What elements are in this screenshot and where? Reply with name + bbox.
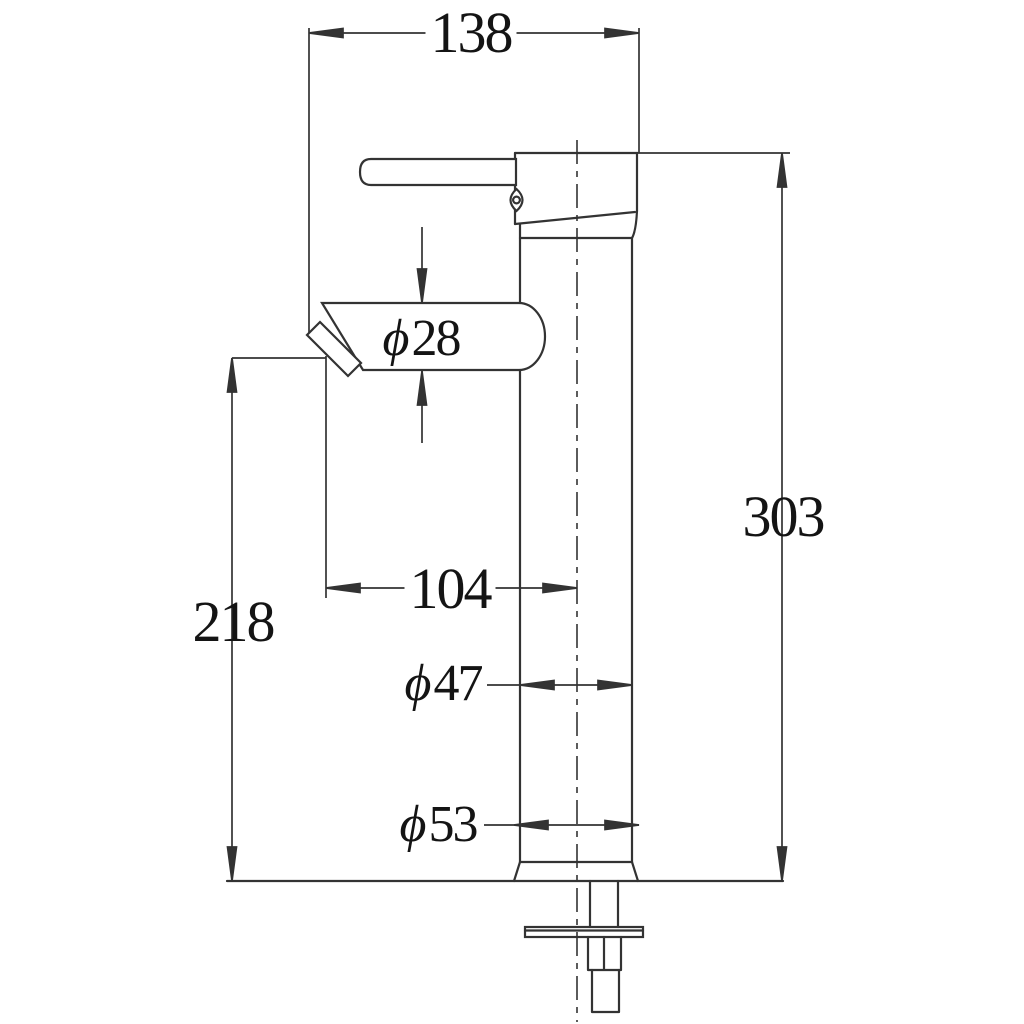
arrow-up-icon [418,371,427,405]
faucet-handle-lever [360,159,516,185]
faucet-outline [227,153,783,1012]
faucet-technical-drawing: 138 303 218 104 ϕ28 ϕ47 ϕ53 [0,0,1024,1024]
arrow-left-icon [309,29,343,38]
arrow-left-icon [520,681,554,690]
arrow-right-icon [598,681,632,690]
dim-label-spout-reach: 104 [405,560,496,618]
diameter-value: 53 [428,796,476,853]
arrow-down-icon [418,269,427,303]
arrow-right-icon [605,821,639,830]
diameter-value: 47 [433,655,481,712]
threaded-stud [592,970,619,1012]
dim-body-diameter [487,681,632,690]
arrow-down-icon [228,847,237,881]
drawing-canvas [0,0,1024,1024]
dim-label-base-diameter: ϕ53 [400,799,477,851]
diameter-symbol: ϕ [400,796,427,853]
dimension-lines [228,28,791,881]
dim-label-overall-width: 138 [426,4,517,62]
arrow-left-icon [326,584,360,593]
faucet-head [515,153,637,238]
faucet-base [514,862,638,881]
dim-label-overall-height: 303 [743,488,824,546]
dim-label-outlet-height: 218 [193,593,274,651]
dim-base-diameter [484,821,639,830]
arrow-right-icon [543,584,577,593]
diameter-symbol: ϕ [383,310,410,367]
arrow-down-icon [778,847,787,881]
arrow-up-icon [778,153,787,187]
mounting-nut [588,937,621,970]
dim-label-body-diameter: ϕ47 [405,658,482,710]
mounting-washer [525,927,643,937]
arrow-up-icon [228,358,237,392]
arrow-right-icon [605,29,639,38]
diameter-value: 28 [411,310,459,367]
dim-label-spout-diameter: ϕ28 [383,313,460,365]
diameter-symbol: ϕ [405,655,432,712]
threaded-shank [525,881,643,1012]
handle-pivot-screw [511,189,523,211]
